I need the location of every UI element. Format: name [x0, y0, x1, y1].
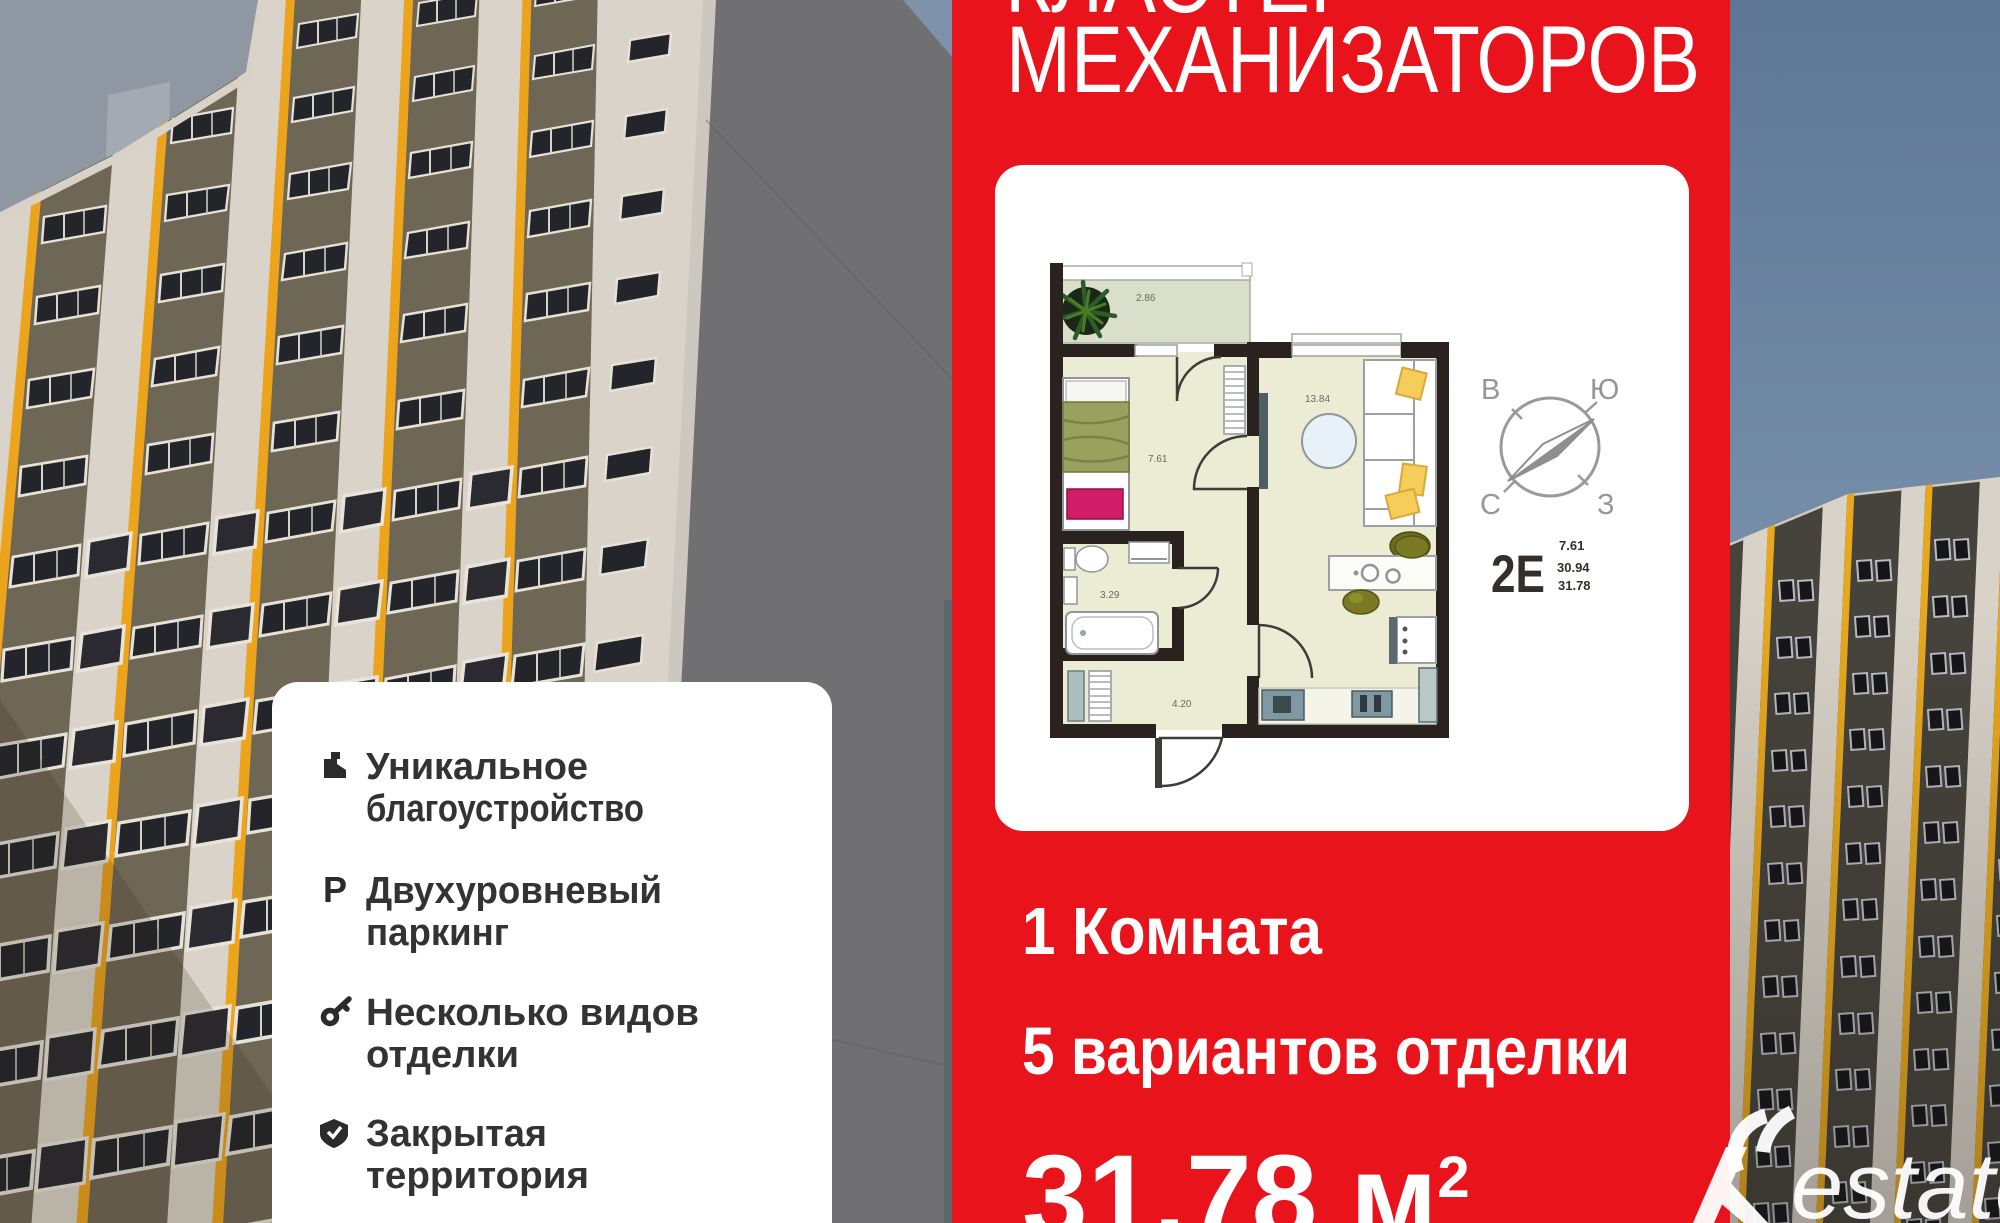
- svg-text:7.61: 7.61: [1148, 454, 1168, 465]
- svg-text:1 Комната: 1 Комната: [1022, 894, 1323, 969]
- svg-text:Ю: Ю: [1590, 374, 1619, 406]
- svg-text:30.94: 30.94: [1557, 560, 1590, 575]
- svg-text:5 вариантов отделки: 5 вариантов отделки: [1022, 1014, 1630, 1089]
- svg-text:13.84: 13.84: [1305, 394, 1330, 405]
- svg-text:территория: территория: [366, 1155, 589, 1197]
- svg-text:4.20: 4.20: [1172, 699, 1192, 710]
- svg-text:паркинг: паркинг: [366, 912, 509, 954]
- svg-text:С: С: [1480, 489, 1501, 521]
- svg-text:31.78 м2: 31.78 м2: [1022, 1131, 1470, 1223]
- svg-text:2.86: 2.86: [1136, 293, 1156, 304]
- svg-text:7.61: 7.61: [1559, 538, 1584, 553]
- svg-text:благоустройство: благоустройство: [366, 788, 644, 830]
- svg-text:отделки: отделки: [366, 1034, 519, 1076]
- svg-text:З: З: [1597, 489, 1615, 521]
- svg-text:Несколько видов: Несколько видов: [366, 992, 699, 1034]
- svg-text:МЕХАНИЗАТОРОВ: МЕХАНИЗАТОРОВ: [1006, 7, 1700, 113]
- svg-text:Закрытая: Закрытая: [366, 1113, 547, 1155]
- svg-text:Р: Р: [323, 869, 347, 910]
- svg-text:Уникальное: Уникальное: [366, 746, 588, 788]
- svg-text:В: В: [1481, 374, 1500, 406]
- svg-text:estate: estate: [1791, 1133, 2000, 1223]
- svg-text:2Е: 2Е: [1491, 545, 1545, 604]
- svg-text:3.29: 3.29: [1100, 590, 1120, 601]
- svg-text:Двухуровневый: Двухуровневый: [366, 870, 662, 912]
- svg-text:31.78: 31.78: [1558, 578, 1591, 593]
